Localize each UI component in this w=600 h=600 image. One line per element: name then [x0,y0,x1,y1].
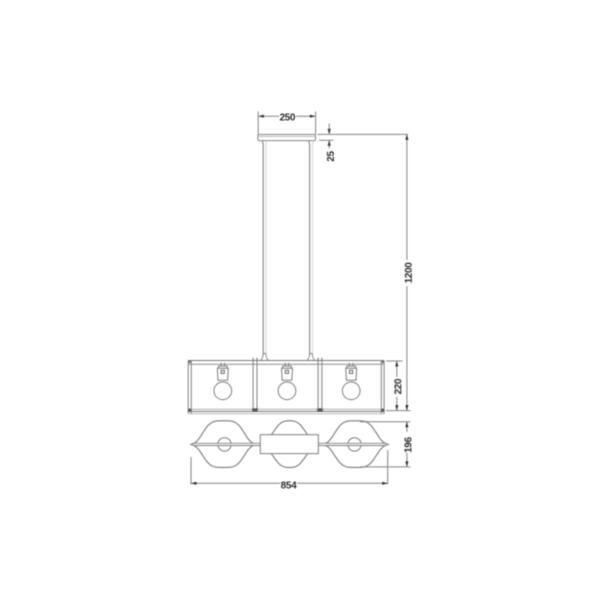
svg-text:196: 196 [403,436,414,452]
svg-text:1200: 1200 [404,262,415,284]
svg-text:854: 854 [281,480,297,491]
svg-text:250: 250 [279,113,295,124]
svg-text:25: 25 [326,151,337,162]
svg-text:220: 220 [393,378,404,394]
